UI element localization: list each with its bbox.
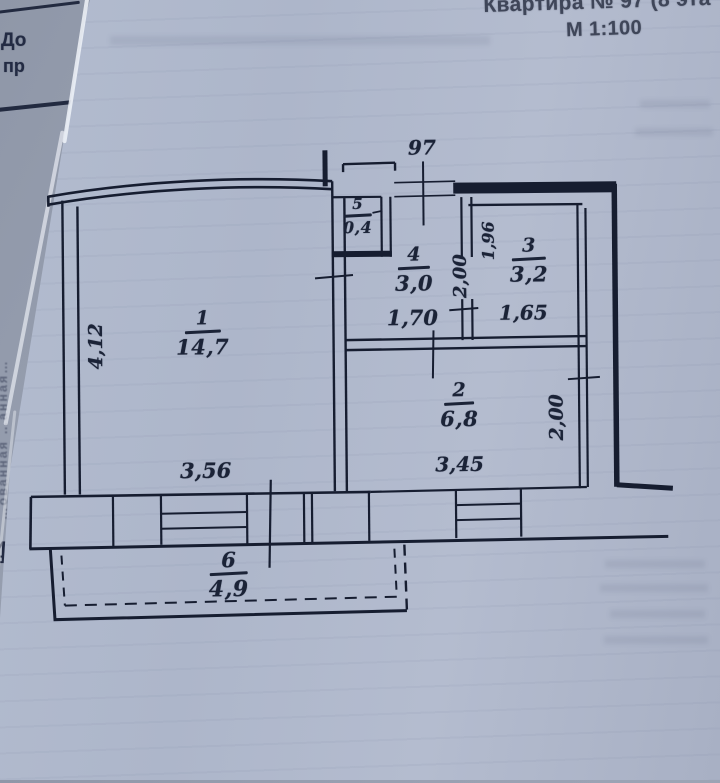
room-1-label: 1 14,7 — [176, 309, 230, 357]
fraction-bar — [444, 401, 474, 405]
room-1-number: 1 — [196, 309, 209, 328]
dim-room2-width: 3,45 — [435, 454, 484, 474]
room-5-area: 0,4 — [343, 219, 372, 235]
room-2-number: 2 — [452, 381, 465, 400]
dim-room1-depth: 4,12 — [87, 323, 106, 369]
kitchen-walls — [345, 329, 585, 379]
room-4-label: 4 3,0 — [395, 245, 433, 293]
fraction-bar — [512, 257, 546, 261]
dim-room4-width: 1,70 — [387, 307, 438, 328]
room-4-number: 4 — [407, 245, 420, 264]
room-3-number: 3 — [522, 236, 535, 255]
dim-room1-width: 3,56 — [180, 460, 231, 481]
dim-entry-width: 97 — [408, 137, 436, 157]
bottom-wall-and-windows — [29, 476, 669, 570]
room-6-label: 6 4,9 — [208, 549, 248, 600]
fraction-bar — [343, 213, 371, 217]
room-2-area: 6,8 — [440, 408, 478, 429]
room-5-number: 5 — [352, 197, 363, 212]
fraction-bar — [184, 329, 220, 333]
room-1-area: 14,7 — [176, 336, 229, 357]
floor-plan-lines — [0, 0, 720, 783]
photographed-floor-plan-page: { "photo": { "title_line1": "Квартира № … — [0, 0, 720, 780]
room-6-number: 6 — [221, 549, 236, 570]
room-3-area: 3,2 — [510, 263, 548, 284]
room-4-area: 3,0 — [395, 272, 433, 293]
dim-room3-width: 1,65 — [499, 302, 548, 322]
room-6-area: 4,9 — [209, 578, 249, 600]
floor-plan: 1 14,7 2 6,8 3 3,2 4 3,0 5 0,4 6 4,9 97 … — [0, 0, 720, 783]
dim-room3-side: 1,96 — [481, 221, 497, 260]
fraction-bar — [398, 266, 430, 270]
room-3-label: 3 3,2 — [510, 236, 548, 284]
room-5-label: 5 0,4 — [343, 197, 373, 236]
dim-room2-depth: 2,00 — [548, 394, 567, 440]
room-2-label: 2 6,8 — [440, 381, 478, 429]
dim-room4-depth: 2,00 — [452, 254, 470, 298]
